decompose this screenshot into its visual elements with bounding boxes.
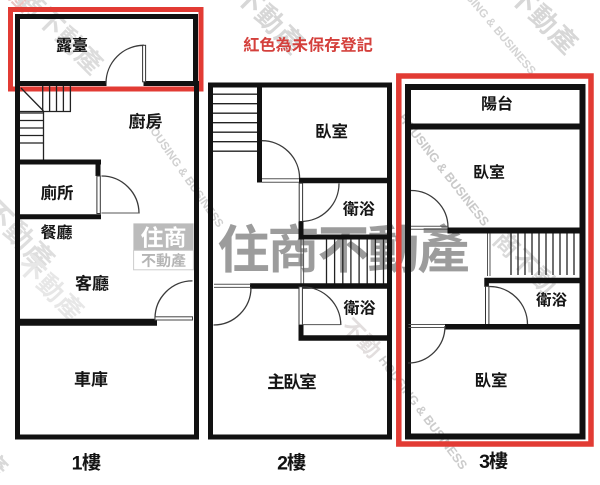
svg-text:1: 1: [72, 453, 83, 475]
svg-text:2: 2: [277, 453, 288, 475]
svg-text:3: 3: [479, 451, 490, 473]
